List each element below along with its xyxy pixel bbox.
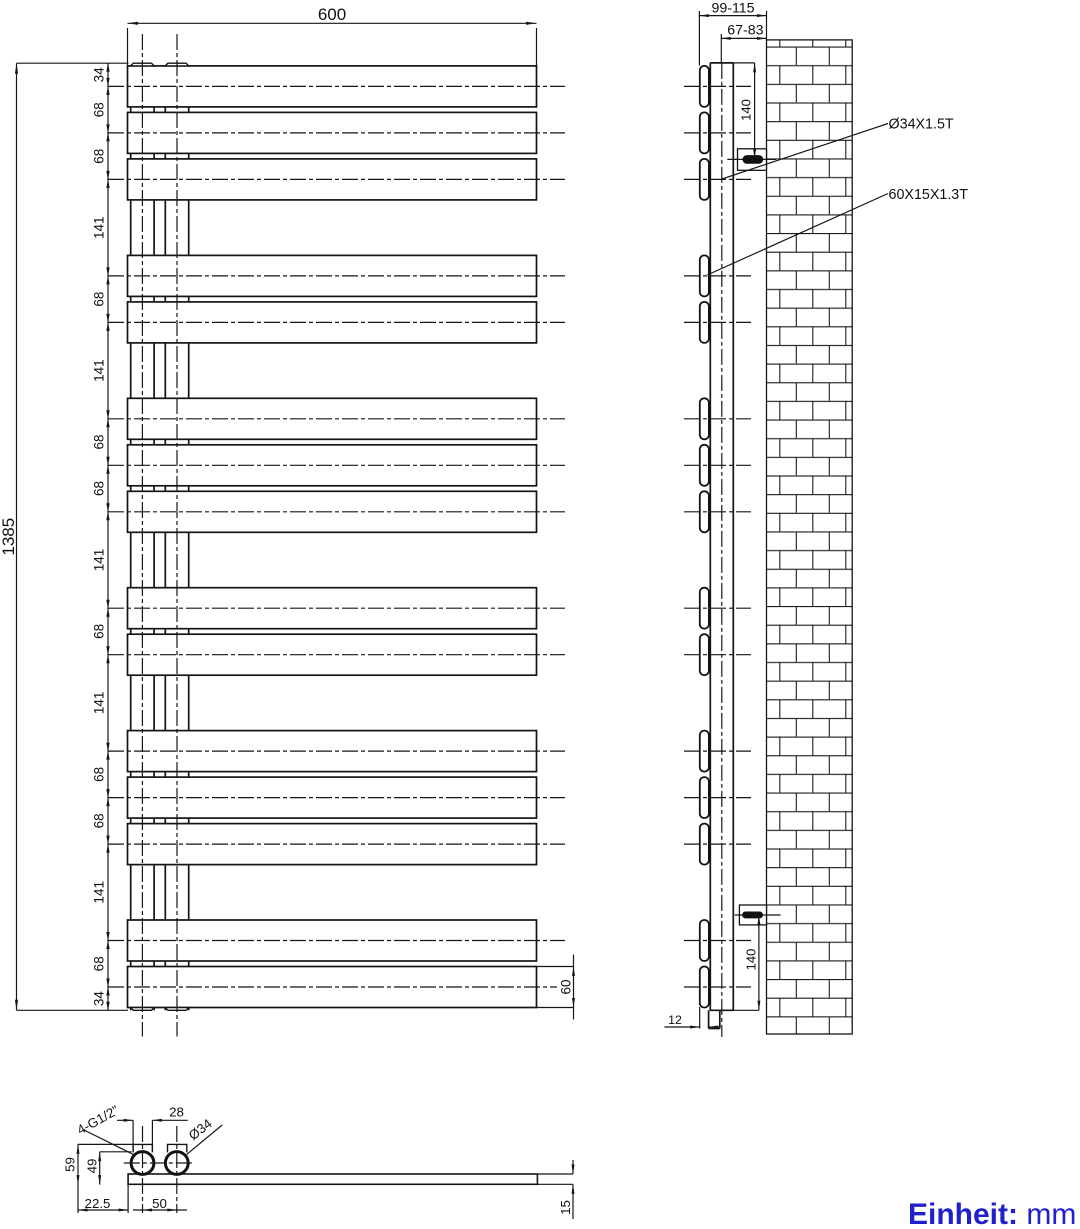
svg-text:59: 59 xyxy=(63,1157,78,1172)
svg-text:22.5: 22.5 xyxy=(85,1196,111,1211)
svg-text:12: 12 xyxy=(668,1013,682,1027)
svg-text:68: 68 xyxy=(91,624,106,639)
svg-text:49: 49 xyxy=(85,1159,100,1174)
svg-text:141: 141 xyxy=(91,216,106,239)
svg-text:140: 140 xyxy=(739,99,754,121)
svg-text:140: 140 xyxy=(744,949,759,971)
svg-text:60: 60 xyxy=(559,979,574,994)
svg-text:141: 141 xyxy=(91,549,106,572)
svg-text:141: 141 xyxy=(91,881,106,904)
svg-text:28: 28 xyxy=(169,1105,184,1120)
svg-text:Einheit: mm: Einheit: mm xyxy=(908,1198,1076,1229)
svg-text:67-83: 67-83 xyxy=(727,23,763,39)
svg-text:68: 68 xyxy=(91,292,106,307)
svg-text:68: 68 xyxy=(91,767,106,782)
svg-text:68: 68 xyxy=(91,434,106,449)
svg-text:1385: 1385 xyxy=(0,518,18,556)
svg-text:15: 15 xyxy=(558,1200,573,1215)
svg-text:50: 50 xyxy=(152,1196,167,1211)
svg-text:141: 141 xyxy=(91,359,106,382)
svg-text:99-115: 99-115 xyxy=(711,0,754,16)
svg-text:34: 34 xyxy=(91,67,106,83)
svg-text:Ø34X1.5T: Ø34X1.5T xyxy=(889,116,954,132)
svg-text:60X15X1.3T: 60X15X1.3T xyxy=(889,187,969,203)
svg-text:68: 68 xyxy=(91,956,106,971)
svg-text:68: 68 xyxy=(91,481,106,496)
svg-text:141: 141 xyxy=(91,692,106,715)
svg-text:600: 600 xyxy=(318,5,346,24)
svg-text:68: 68 xyxy=(91,149,106,164)
svg-text:34: 34 xyxy=(91,991,106,1007)
svg-text:68: 68 xyxy=(91,102,106,117)
svg-text:68: 68 xyxy=(91,813,106,828)
